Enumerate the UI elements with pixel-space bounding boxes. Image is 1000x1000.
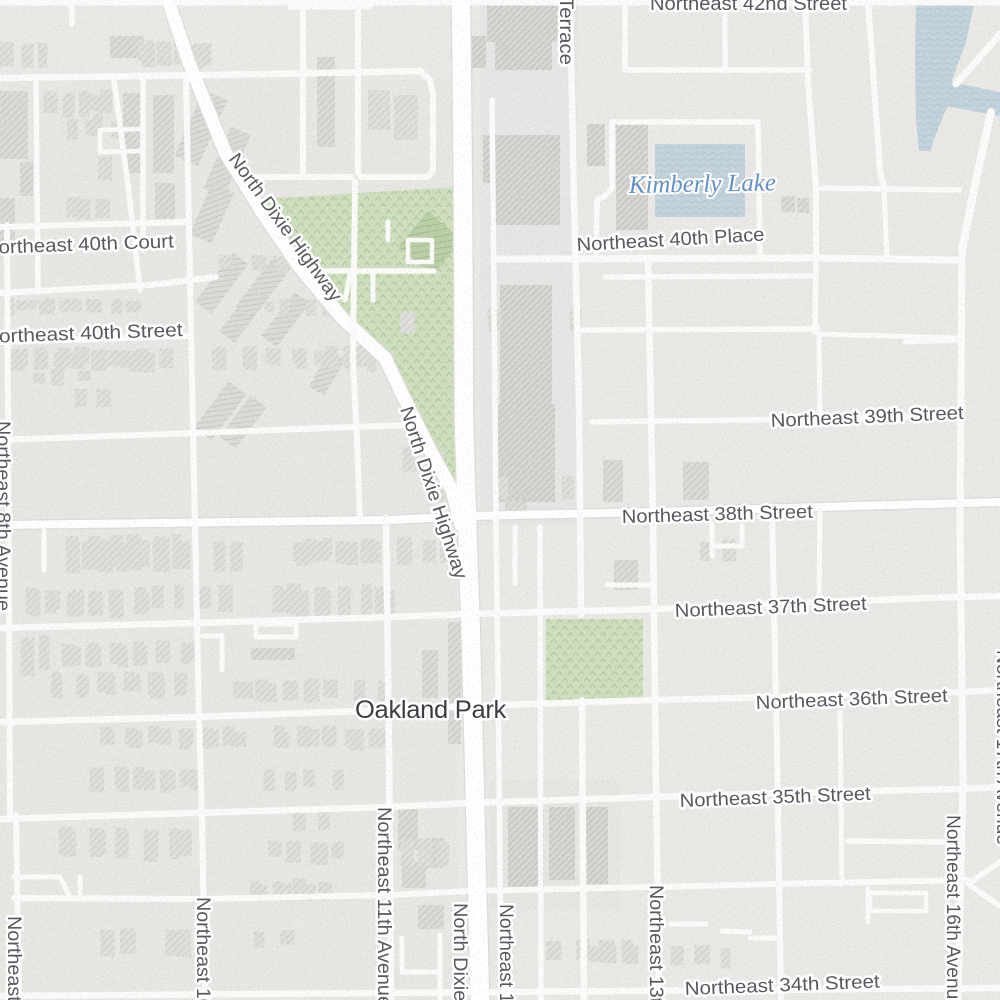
svg-text:Northeast 13th Avenue: Northeast 13th Avenue	[645, 885, 666, 1000]
svg-text:Kimberly Lake: Kimberly Lake	[628, 169, 776, 199]
svg-text:Oakland Park: Oakland Park	[355, 696, 507, 724]
svg-text:Northeast 9th Avenue: Northeast 9th Avenue	[3, 916, 24, 1000]
svg-text:Northeast 17th Avenue: Northeast 17th Avenue	[992, 650, 1000, 845]
svg-text:Northeast 16th Avenue: Northeast 16th Avenue	[942, 815, 963, 1000]
svg-text:North Dixie Highway: North Dixie Highway	[449, 903, 470, 1000]
svg-text:Northeast 10th Avenue: Northeast 10th Avenue	[192, 897, 213, 1000]
svg-text:Northeast 11th Avenue: Northeast 11th Avenue	[373, 807, 394, 1000]
svg-text:Northeast 8th Avenue: Northeast 8th Avenue	[0, 421, 13, 611]
svg-text:Terrace: Terrace	[555, 0, 576, 65]
svg-text:Northeast 42nd Street: Northeast 42nd Street	[650, 0, 848, 15]
svg-text:Northeast 12th Avenue: Northeast 12th Avenue	[495, 904, 516, 1000]
